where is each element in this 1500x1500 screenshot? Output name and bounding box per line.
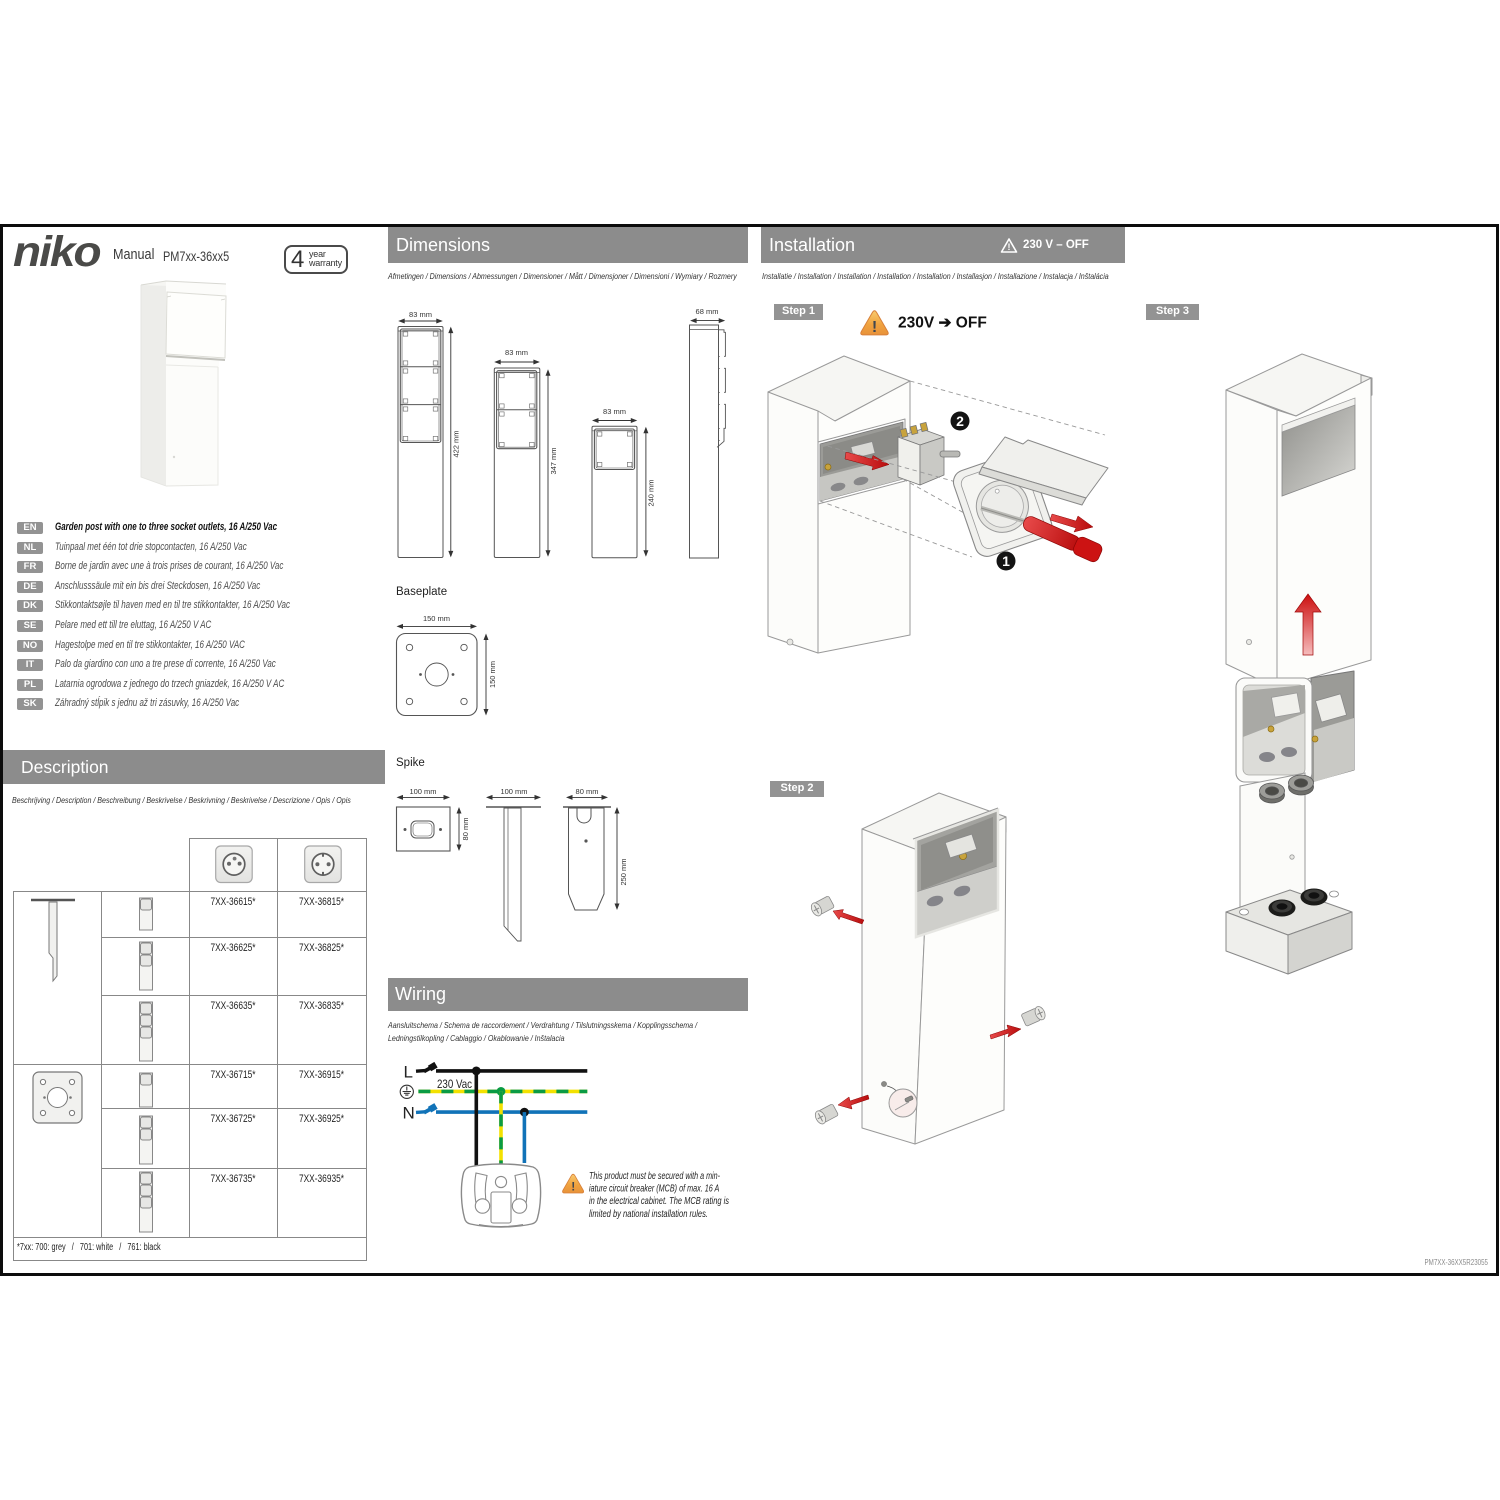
svg-text:68 mm: 68 mm	[696, 307, 719, 316]
svg-text:!: !	[872, 319, 877, 336]
svg-text:422 mm: 422 mm	[452, 430, 461, 457]
svg-text:L: L	[404, 1063, 413, 1082]
svg-text:240 mm: 240 mm	[647, 479, 656, 506]
svg-text:83 mm: 83 mm	[603, 407, 626, 416]
svg-text:80 mm: 80 mm	[461, 818, 470, 841]
svg-text:150 mm: 150 mm	[423, 614, 450, 623]
svg-text:83 mm: 83 mm	[505, 348, 528, 357]
svg-text:2: 2	[956, 413, 964, 429]
svg-text:1: 1	[1002, 553, 1010, 569]
svg-text:!: !	[571, 1180, 575, 1194]
svg-text:This product must be secured w: This product must be secured with a min-…	[589, 1171, 732, 1220]
svg-text:230 Vac: 230 Vac	[437, 1077, 472, 1091]
svg-text:100 mm: 100 mm	[409, 787, 436, 796]
svg-text:N: N	[403, 1104, 415, 1123]
svg-text:230V ➔ OFF: 230V ➔ OFF	[898, 315, 987, 332]
svg-text:!: !	[1008, 242, 1011, 252]
svg-text:100 mm: 100 mm	[500, 787, 527, 796]
svg-text:250 mm: 250 mm	[619, 858, 628, 885]
svg-text:80 mm: 80 mm	[576, 787, 599, 796]
svg-text:150 mm: 150 mm	[488, 661, 497, 688]
svg-text:83 mm: 83 mm	[409, 310, 432, 319]
svg-text:347 mm: 347 mm	[549, 447, 558, 474]
